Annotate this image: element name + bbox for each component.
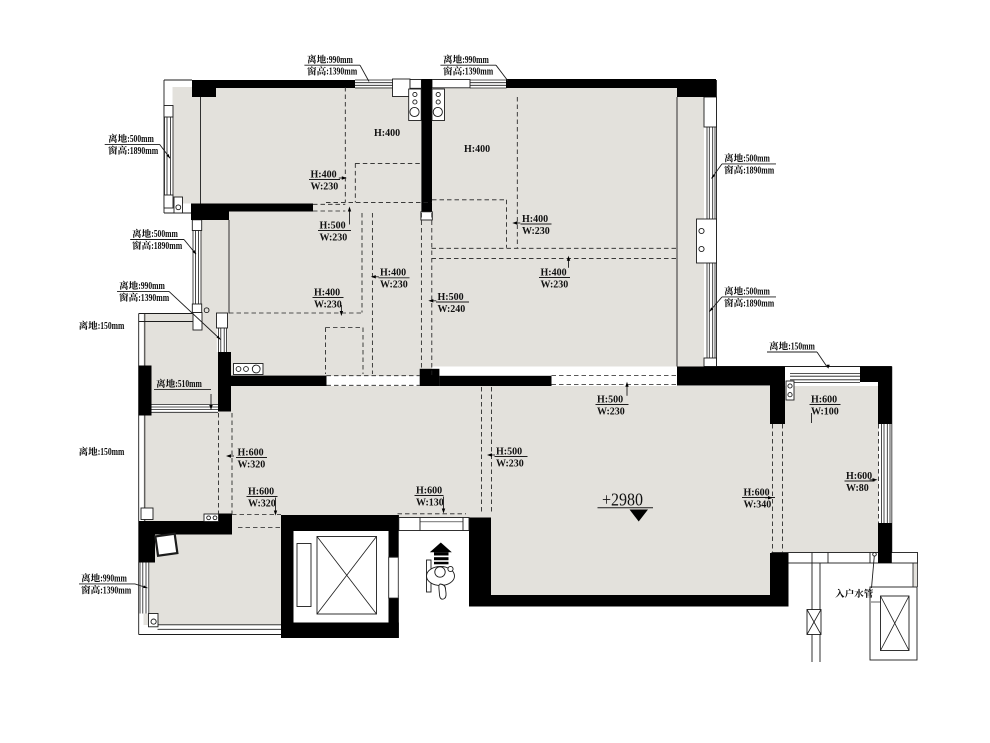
svg-text:H:600: H:600 [744,487,770,498]
svg-text:W:340: W:340 [744,499,772,510]
svg-text:H:600: H:600 [248,486,274,497]
svg-text::1890mm: :1890mm [743,298,775,309]
svg-text:W:130: W:130 [416,497,444,508]
svg-text:H:500: H:500 [320,220,346,231]
svg-text::1390mm: :1390mm [138,293,170,304]
svg-text:H:600: H:600 [238,447,264,458]
svg-text::1390mm: :1390mm [326,67,358,78]
svg-text:H:600: H:600 [846,471,872,482]
svg-text::990mm: :990mm [462,55,489,66]
svg-text::500mm: :500mm [743,287,770,298]
svg-text::150mm: :150mm [98,447,125,458]
svg-text::150mm: :150mm [788,342,815,353]
svg-text:W:100: W:100 [811,406,839,417]
svg-text:H:400: H:400 [374,128,400,139]
svg-text:H:400: H:400 [314,287,340,298]
svg-text:W:230: W:230 [522,226,550,237]
svg-text:H:400: H:400 [464,144,490,155]
svg-text:H:400: H:400 [522,214,548,225]
svg-text::500mm: :500mm [127,134,154,145]
svg-text::1890mm: :1890mm [743,165,775,176]
svg-text::1390mm: :1390mm [100,585,132,596]
svg-text:W:230: W:230 [597,406,625,417]
svg-text:W:230: W:230 [311,181,339,192]
svg-text::500mm: :500mm [151,229,178,240]
svg-text:+2980: +2980 [602,490,643,510]
svg-text:H:600: H:600 [416,485,442,496]
svg-text::1890mm: :1890mm [151,241,183,252]
svg-text::510mm: :510mm [175,379,202,390]
svg-text:W:230: W:230 [541,279,569,290]
svg-text::150mm: :150mm [98,321,125,332]
svg-text:H:600: H:600 [811,394,837,405]
svg-text:W:230: W:230 [314,299,342,310]
svg-text:W:230: W:230 [380,280,408,291]
svg-text::990mm: :990mm [326,55,353,66]
svg-text:W:230: W:230 [496,458,524,469]
svg-text:H:400: H:400 [311,169,337,180]
svg-text::1890mm: :1890mm [127,146,159,157]
svg-text:W:80: W:80 [846,483,869,494]
svg-text:H:400: H:400 [541,267,567,278]
svg-text::500mm: :500mm [743,154,770,165]
svg-text:W:320: W:320 [248,498,276,509]
svg-text:H:500: H:500 [496,446,522,457]
svg-text::990mm: :990mm [100,574,127,585]
svg-text:W:320: W:320 [238,459,266,470]
svg-text:H:500: H:500 [438,292,464,303]
svg-text::1390mm: :1390mm [462,67,494,78]
svg-text::990mm: :990mm [138,281,165,292]
svg-text:W:230: W:230 [320,232,348,243]
svg-text:W:240: W:240 [438,304,466,315]
svg-text:H:500: H:500 [597,394,623,405]
svg-text:H:400: H:400 [380,268,406,279]
